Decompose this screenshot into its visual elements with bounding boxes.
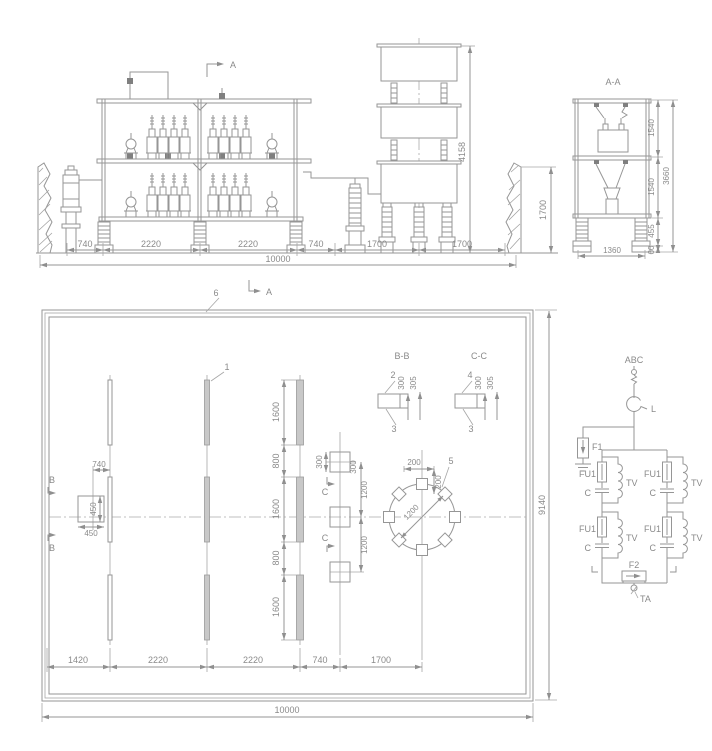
rail-column-3 [297,375,304,645]
section-marker-label: A [230,60,236,70]
tv-stage: FU1 C TV [579,450,638,513]
dim-label: 2220 [141,239,161,249]
dim-label: 300 [349,460,358,474]
dim-label: 200 [434,475,443,489]
dim-label: 800 [271,550,281,565]
dim-label: 800 [271,453,281,468]
dim-label: 305 [409,376,418,390]
component-label: FU1 [579,524,596,534]
component-label: FU1 [644,524,661,534]
dim-label: 4158 [457,142,467,162]
component-label: FU1 [644,469,661,479]
section-marker-label: B [49,475,55,485]
component-label: C [585,488,592,498]
detail-cc: C-C 4 3 300 305 [455,351,499,434]
foundation-circle: 5 200 200 1200 [384,450,461,660]
dim-label: 10000 [274,705,299,715]
component-label: TV [691,533,703,543]
dim-label: 1600 [271,499,281,519]
dim-label: 740 [92,460,106,469]
foundation-c-column: 300 300 1200 1200 C C [315,432,369,655]
dim-label: 1360 [603,246,621,255]
elevation-view: A A 740 2220 2220 740 1700 1700 [36,38,558,297]
callout-label: 3 [468,424,473,434]
component-label: FU1 [579,469,596,479]
section-marker-a-bottom: A [249,280,272,297]
callout-label: 3 [391,424,396,434]
right-wall [506,163,521,253]
dim-label: 450 [89,502,98,516]
section-marker-label: B [49,543,55,553]
component-label: F2 [629,560,640,570]
component-label: TV [691,478,703,488]
dim-label: 1540 [647,178,656,196]
dim-label: 450 [84,529,98,538]
component-label: C [650,488,657,498]
section-marker-label: C [322,487,329,497]
plan-view: 6 1 [42,288,557,722]
callout-label: 4 [467,370,472,380]
component-label: TV [626,533,638,543]
dim-label: 2220 [148,655,168,665]
dim-label: 10000 [265,254,290,264]
tv-stage: FU1 C TV [644,512,703,570]
section-capacitor-top [594,103,628,152]
dim-label: 1700 [367,239,387,249]
dim-label: 1540 [647,119,656,137]
elevation-dimensions: 740 2220 2220 740 1700 1700 10000 4158 1… [40,46,556,268]
detail-title: B-B [394,351,409,361]
reactor-stack [377,38,461,253]
section-marker-label: A [266,287,272,297]
dim-label: 740 [312,655,327,665]
spark-gap-f2: F2 [592,560,676,583]
flexible-link-icon [632,375,637,398]
dim-label: 1200 [360,481,369,499]
equipment-frame [97,72,311,221]
dim-label: 1600 [271,597,281,617]
dim-label: 300 [315,455,324,469]
dim-label: 455 [647,224,656,238]
dim-label: 9140 [537,495,547,515]
dim-label: 1200 [360,536,369,554]
drawing-sheet: A A 740 2220 2220 740 1700 1700 [0,0,712,751]
callout-label: 6 [213,288,218,298]
foundation-b: 740 450 450 B B [48,460,110,553]
dim-label: 300 [397,376,406,390]
arrester-f1: F1 [575,427,634,471]
dim-label: 3660 [662,167,671,185]
tv-stage: FU1 C TV [644,450,703,513]
section-marker-a-top: A [207,60,236,77]
circuit-schematic: ABC L F1 FU1 C TV [575,355,703,604]
dim-label: 305 [486,376,495,390]
bus-label: ABC [625,355,644,365]
dim-label: 300 [474,376,483,390]
detail-title: C-C [471,351,487,361]
dim-label: 60 [647,245,656,254]
section-aa-dimensions: 1540 1540 455 60 3660 1360 [578,100,678,259]
dim-label: 1200 [402,502,421,521]
rail-dimension-chain: 1600 800 1600 800 1600 [271,380,296,640]
dim-label: 1700 [538,200,548,220]
component-label: TA [640,594,651,604]
section-aa-view: A-A [573,77,678,259]
rail-column-2: 1 [205,362,230,645]
component-label: F1 [592,442,603,452]
callout-label: 1 [224,362,229,372]
current-transformer-ta: TA [631,583,651,604]
section-marker-label: C [322,533,329,543]
dim-label: 740 [308,239,323,249]
dim-label: 1700 [371,655,391,665]
component-label: TV [626,478,638,488]
dim-label: 200 [407,458,421,467]
rail-column-1 [108,375,112,645]
component-label: C [650,543,657,553]
dim-label: 740 [77,239,92,249]
dim-label: 1420 [68,655,88,665]
section-funnel-bottom [594,160,628,214]
terminal-icon [632,370,637,375]
dim-label: 2220 [238,239,258,249]
section-title: A-A [605,77,620,87]
left-wall [38,163,52,253]
drawing-canvas: A A 740 2220 2220 740 1700 1700 [0,0,712,751]
dim-label: 2220 [243,655,263,665]
callout-label: 5 [448,456,453,466]
reactor-symbol: L [627,397,656,414]
detail-bb: B-B 2 3 300 305 [378,351,422,434]
dim-label: 1600 [271,402,281,422]
component-label: L [651,404,656,414]
callout-label: 2 [390,370,395,380]
component-label: C [585,543,592,553]
